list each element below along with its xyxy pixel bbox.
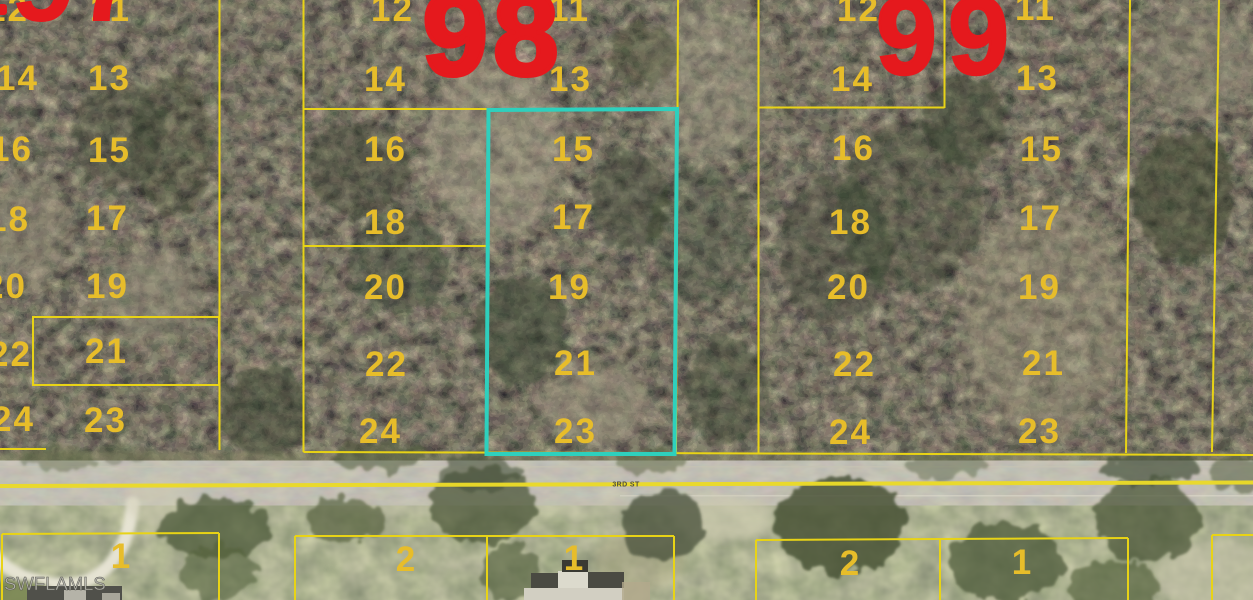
svg-text:SWFLAMLS: SWFLAMLS — [4, 573, 106, 594]
svg-text:20: 20 — [0, 267, 27, 306]
svg-text:14: 14 — [364, 60, 407, 99]
svg-text:24: 24 — [829, 413, 872, 452]
svg-text:21: 21 — [85, 332, 128, 371]
svg-text:18: 18 — [829, 203, 872, 242]
svg-text:2: 2 — [396, 540, 417, 579]
svg-text:12: 12 — [837, 0, 880, 29]
svg-text:22: 22 — [0, 335, 32, 374]
svg-text:23: 23 — [84, 401, 127, 440]
svg-text:18: 18 — [364, 203, 407, 242]
svg-text:23: 23 — [1018, 412, 1061, 451]
svg-text:20: 20 — [827, 268, 870, 307]
svg-text:16: 16 — [0, 130, 33, 169]
svg-text:24: 24 — [0, 400, 35, 439]
svg-text:19: 19 — [1018, 268, 1061, 307]
svg-text:17: 17 — [552, 198, 595, 237]
svg-text:98: 98 — [422, 0, 563, 101]
svg-text:12: 12 — [371, 0, 414, 29]
svg-text:14: 14 — [0, 59, 39, 98]
svg-text:18: 18 — [0, 200, 30, 239]
svg-text:16: 16 — [364, 130, 407, 169]
svg-text:23: 23 — [554, 412, 597, 451]
svg-text:19: 19 — [86, 267, 129, 306]
svg-text:16: 16 — [832, 129, 875, 168]
svg-text:19: 19 — [548, 268, 591, 307]
svg-text:2: 2 — [840, 544, 861, 583]
svg-text:1: 1 — [1012, 543, 1033, 582]
svg-text:21: 21 — [1022, 344, 1065, 383]
svg-text:15: 15 — [1020, 130, 1063, 169]
svg-text:22: 22 — [365, 345, 408, 384]
svg-text:15: 15 — [552, 130, 595, 169]
svg-text:1: 1 — [564, 539, 585, 578]
svg-text:97: 97 — [10, 0, 141, 47]
svg-text:99: 99 — [876, 0, 1020, 98]
svg-text:22: 22 — [833, 345, 876, 384]
svg-text:3RD ST: 3RD ST — [612, 482, 640, 489]
svg-text:11: 11 — [1015, 0, 1056, 28]
svg-text:13: 13 — [1016, 59, 1059, 98]
svg-text:17: 17 — [1019, 199, 1062, 238]
svg-text:14: 14 — [831, 60, 874, 99]
svg-text:20: 20 — [364, 268, 407, 307]
svg-text:24: 24 — [359, 412, 402, 451]
svg-text:1: 1 — [111, 537, 132, 576]
svg-text:15: 15 — [88, 131, 131, 170]
svg-text:21: 21 — [554, 344, 597, 383]
svg-text:13: 13 — [88, 59, 131, 98]
svg-text:17: 17 — [86, 199, 129, 238]
